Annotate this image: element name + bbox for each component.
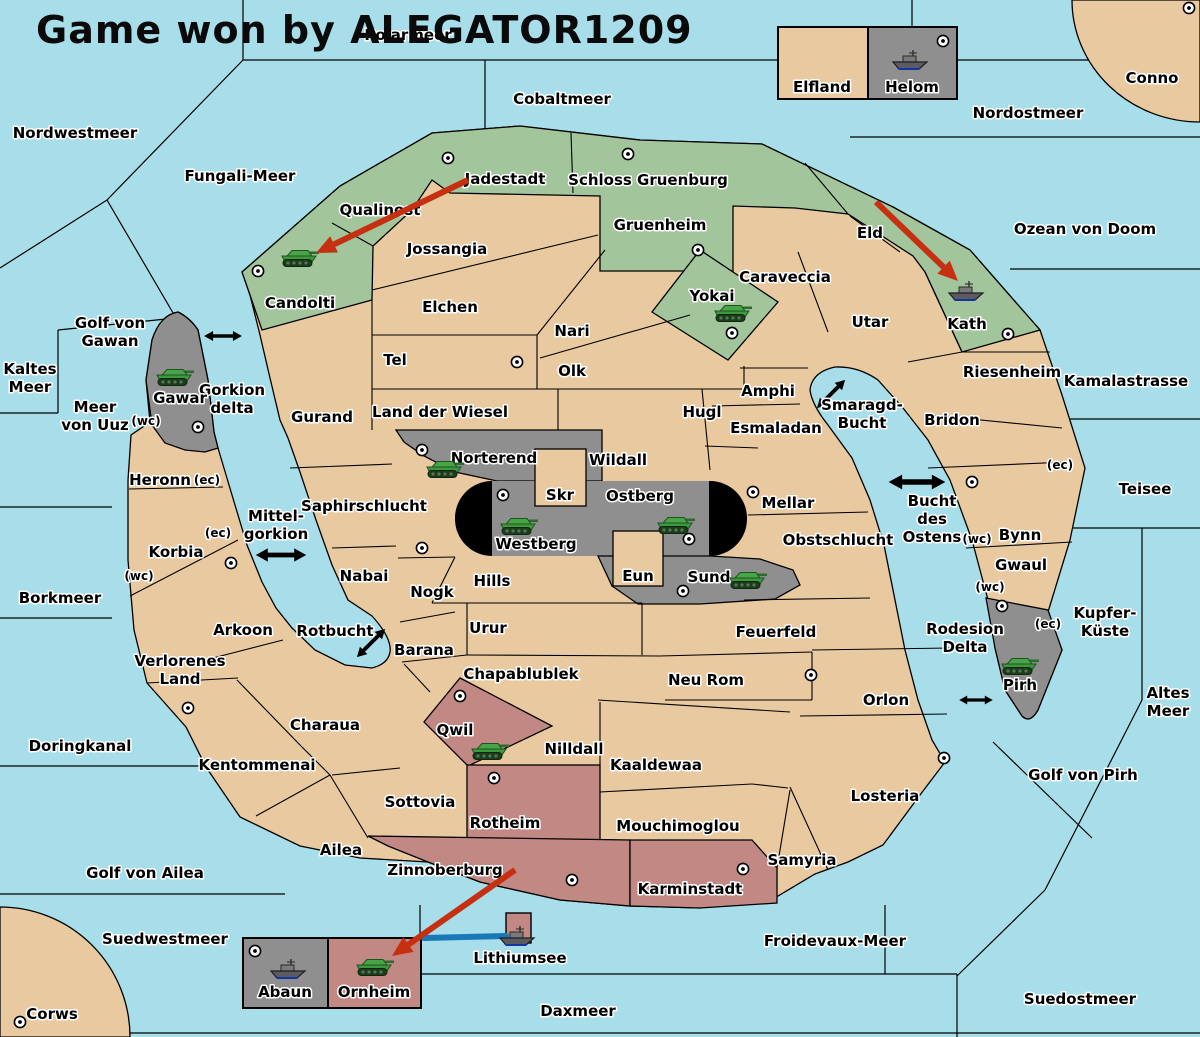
supply-center-kath bbox=[1002, 328, 1013, 339]
label-amphi: Amphi bbox=[741, 382, 795, 400]
label-land-der-wiesel: Land der Wiesel bbox=[372, 403, 508, 421]
label-olk: Olk bbox=[558, 362, 587, 380]
label-losteria: Losteria bbox=[851, 787, 920, 805]
supply-center-rotheim bbox=[488, 772, 499, 783]
label-kaltes-meer: KaltesMeer bbox=[3, 360, 56, 396]
label-hugl: Hugl bbox=[682, 403, 721, 421]
supply-center-ostberg bbox=[683, 533, 694, 544]
label-korbia: Korbia bbox=[148, 543, 203, 561]
supply-center-pirh bbox=[996, 600, 1007, 611]
label-gruenheim: Gruenheim bbox=[614, 216, 707, 234]
label-golf-von-pirh: Golf von Pirh bbox=[1028, 766, 1138, 784]
label-karminstadt: Karminstadt bbox=[638, 880, 743, 898]
label-mellar: Mellar bbox=[762, 494, 816, 512]
label-neu-rom: Neu Rom bbox=[668, 671, 744, 689]
label-golf-von-ailea: Golf von Ailea bbox=[86, 864, 204, 882]
supply-center-korbia bbox=[225, 557, 236, 568]
label-daxmeer: Daxmeer bbox=[540, 1002, 616, 1020]
label-rotbucht: Rotbucht bbox=[296, 622, 373, 640]
supply-center-conno bbox=[1183, 2, 1194, 13]
label-rotheim: Rotheim bbox=[470, 814, 541, 832]
label-ostberg: Ostberg bbox=[606, 487, 674, 505]
label-kupfer-kueste: Kupfer-Küste bbox=[1073, 604, 1136, 640]
label-wildall: Wildall bbox=[589, 451, 647, 469]
label-bridon: Bridon bbox=[924, 411, 980, 429]
label-hills: Hills bbox=[474, 572, 511, 590]
label-ornheim: Ornheim bbox=[338, 983, 410, 1001]
supply-center-jadestadt bbox=[442, 152, 453, 163]
supply-center-kentommenai bbox=[182, 702, 193, 713]
coast-label-6: (wc) bbox=[975, 580, 1004, 594]
coast-label-0: (wc) bbox=[131, 414, 160, 428]
label-bynn: Bynn bbox=[999, 526, 1042, 544]
label-nilldall: Nilldall bbox=[544, 740, 603, 758]
coast-label-1: (ec) bbox=[194, 473, 220, 487]
label-nordwestmeer: Nordwestmeer bbox=[13, 124, 138, 142]
supply-center-mellar bbox=[747, 486, 758, 497]
label-conno: Conno bbox=[1126, 69, 1179, 87]
link-ornheim-lithiumsee bbox=[424, 936, 506, 938]
supply-center-qwil bbox=[454, 690, 465, 701]
label-heronn: Heronn bbox=[129, 471, 191, 489]
supply-center-gawar bbox=[192, 421, 203, 432]
coast-label-3: (wc) bbox=[124, 569, 153, 583]
supply-center-helom bbox=[937, 35, 948, 46]
coast-label-4: (ec) bbox=[1047, 458, 1073, 472]
supply-center-sund bbox=[677, 585, 688, 596]
label-doringkanal: Doringkanal bbox=[29, 737, 132, 755]
supply-center-karminstadt bbox=[737, 863, 748, 874]
supply-center-bynn bbox=[966, 476, 977, 487]
label-sottovia: Sottovia bbox=[385, 793, 456, 811]
supply-center-schloss-gruenburg bbox=[622, 148, 633, 159]
label-abaun: Abaun bbox=[258, 983, 312, 1001]
label-cobaltmeer: Cobaltmeer bbox=[513, 90, 611, 108]
supply-center-gruenheim bbox=[692, 244, 703, 255]
supply-center-neu-rom bbox=[805, 669, 816, 680]
label-feuerfeld: Feuerfeld bbox=[736, 623, 817, 641]
label-obstschlucht: Obstschlucht bbox=[783, 531, 894, 549]
supply-center-tel bbox=[511, 356, 522, 367]
label-zinnoberburg: Zinnoberburg bbox=[387, 861, 503, 879]
supply-center-corws bbox=[14, 1016, 25, 1027]
label-jadestadt: Jadestadt bbox=[464, 170, 546, 188]
label-ailea: Ailea bbox=[320, 841, 362, 859]
label-tel: Tel bbox=[383, 351, 407, 369]
label-fungali-meer: Fungali-Meer bbox=[185, 167, 296, 185]
label-chapablublek: Chapablublek bbox=[463, 665, 579, 683]
supply-center-abaun bbox=[249, 945, 260, 956]
label-barana: Barana bbox=[394, 641, 454, 659]
label-pirh: Pirh bbox=[1003, 676, 1037, 694]
label-kaaldewaa: Kaaldewaa bbox=[610, 756, 702, 774]
label-nordostmeer: Nordostmeer bbox=[973, 104, 1084, 122]
label-kath: Kath bbox=[947, 315, 987, 333]
label-jossangia: Jossangia bbox=[406, 240, 488, 258]
coast-label-2: (ec) bbox=[205, 526, 231, 540]
label-helom: Helom bbox=[885, 78, 939, 96]
label-nari: Nari bbox=[554, 322, 589, 340]
label-skr: Skr bbox=[546, 486, 575, 504]
page-title: Game won by ALEGATOR1209 bbox=[36, 8, 693, 52]
label-westberg: Westberg bbox=[495, 535, 576, 553]
supply-center-norterend bbox=[416, 444, 427, 455]
label-gwaul: Gwaul bbox=[995, 556, 1047, 574]
label-gawar: Gawar bbox=[153, 389, 207, 407]
label-arkoon: Arkoon bbox=[213, 621, 273, 639]
label-elfland: Elfland bbox=[793, 78, 851, 96]
label-kentommenai: Kentommenai bbox=[198, 756, 315, 774]
label-schloss-gruenburg: Schloss Gruenburg bbox=[568, 171, 728, 189]
label-mittel-gorkion: Mittel-gorkion bbox=[244, 507, 309, 543]
supply-center-zinnoberburg bbox=[566, 874, 577, 885]
label-ozean-von-doom: Ozean von Doom bbox=[1014, 220, 1156, 238]
supply-center-yokai bbox=[726, 327, 737, 338]
label-caraveccia: Caraveccia bbox=[739, 268, 831, 286]
label-candolti: Candolti bbox=[265, 294, 335, 312]
label-samyria: Samyria bbox=[768, 851, 837, 869]
label-lithiumsee: Lithiumsee bbox=[473, 949, 566, 967]
label-suedwestmeer: Suedwestmeer bbox=[102, 930, 228, 948]
label-mouchimoglou: Mouchimoglou bbox=[616, 817, 739, 835]
label-nabai: Nabai bbox=[340, 567, 389, 585]
supply-center-nabai bbox=[416, 542, 427, 553]
label-eun: Eun bbox=[622, 567, 654, 585]
label-urur: Urur bbox=[469, 619, 507, 637]
supply-center-losteria bbox=[938, 752, 949, 763]
label-eld: Eld bbox=[857, 224, 883, 242]
label-utar: Utar bbox=[852, 313, 889, 331]
label-esmaladan: Esmaladan bbox=[730, 419, 822, 437]
label-orlon: Orlon bbox=[863, 691, 909, 709]
label-froidevaux-meer: Froidevaux-Meer bbox=[764, 932, 907, 950]
label-gurand: Gurand bbox=[291, 408, 353, 426]
label-suedostmeer: Suedostmeer bbox=[1024, 990, 1137, 1008]
coast-label-7: (ec) bbox=[1035, 617, 1061, 631]
label-charaua: Charaua bbox=[290, 716, 360, 734]
label-altes-meer: AltesMeer bbox=[1146, 684, 1189, 720]
label-yokai: Yokai bbox=[688, 287, 734, 305]
label-elchen: Elchen bbox=[422, 298, 478, 316]
label-golf-von-gawan: Golf vonGawan bbox=[75, 314, 145, 350]
label-borkmeer: Borkmeer bbox=[19, 589, 102, 607]
label-teisee: Teisee bbox=[1119, 480, 1172, 498]
label-saphirschlucht: Saphirschlucht bbox=[301, 497, 427, 515]
label-sund: Sund bbox=[688, 568, 731, 586]
supply-center-westberg bbox=[497, 489, 508, 500]
label-kamalastrasse: Kamalastrasse bbox=[1064, 372, 1188, 390]
label-qwil: Qwil bbox=[437, 721, 474, 739]
label-nogk: Nogk bbox=[410, 583, 455, 601]
game-map: PolarmeerNordwestmeerFungali-MeerCobaltm… bbox=[0, 0, 1200, 1037]
label-corws: Corws bbox=[26, 1005, 78, 1023]
label-riesenheim: Riesenheim bbox=[963, 363, 1061, 381]
coast-label-5: (wc) bbox=[962, 532, 991, 546]
supply-center-candolti bbox=[252, 265, 263, 276]
